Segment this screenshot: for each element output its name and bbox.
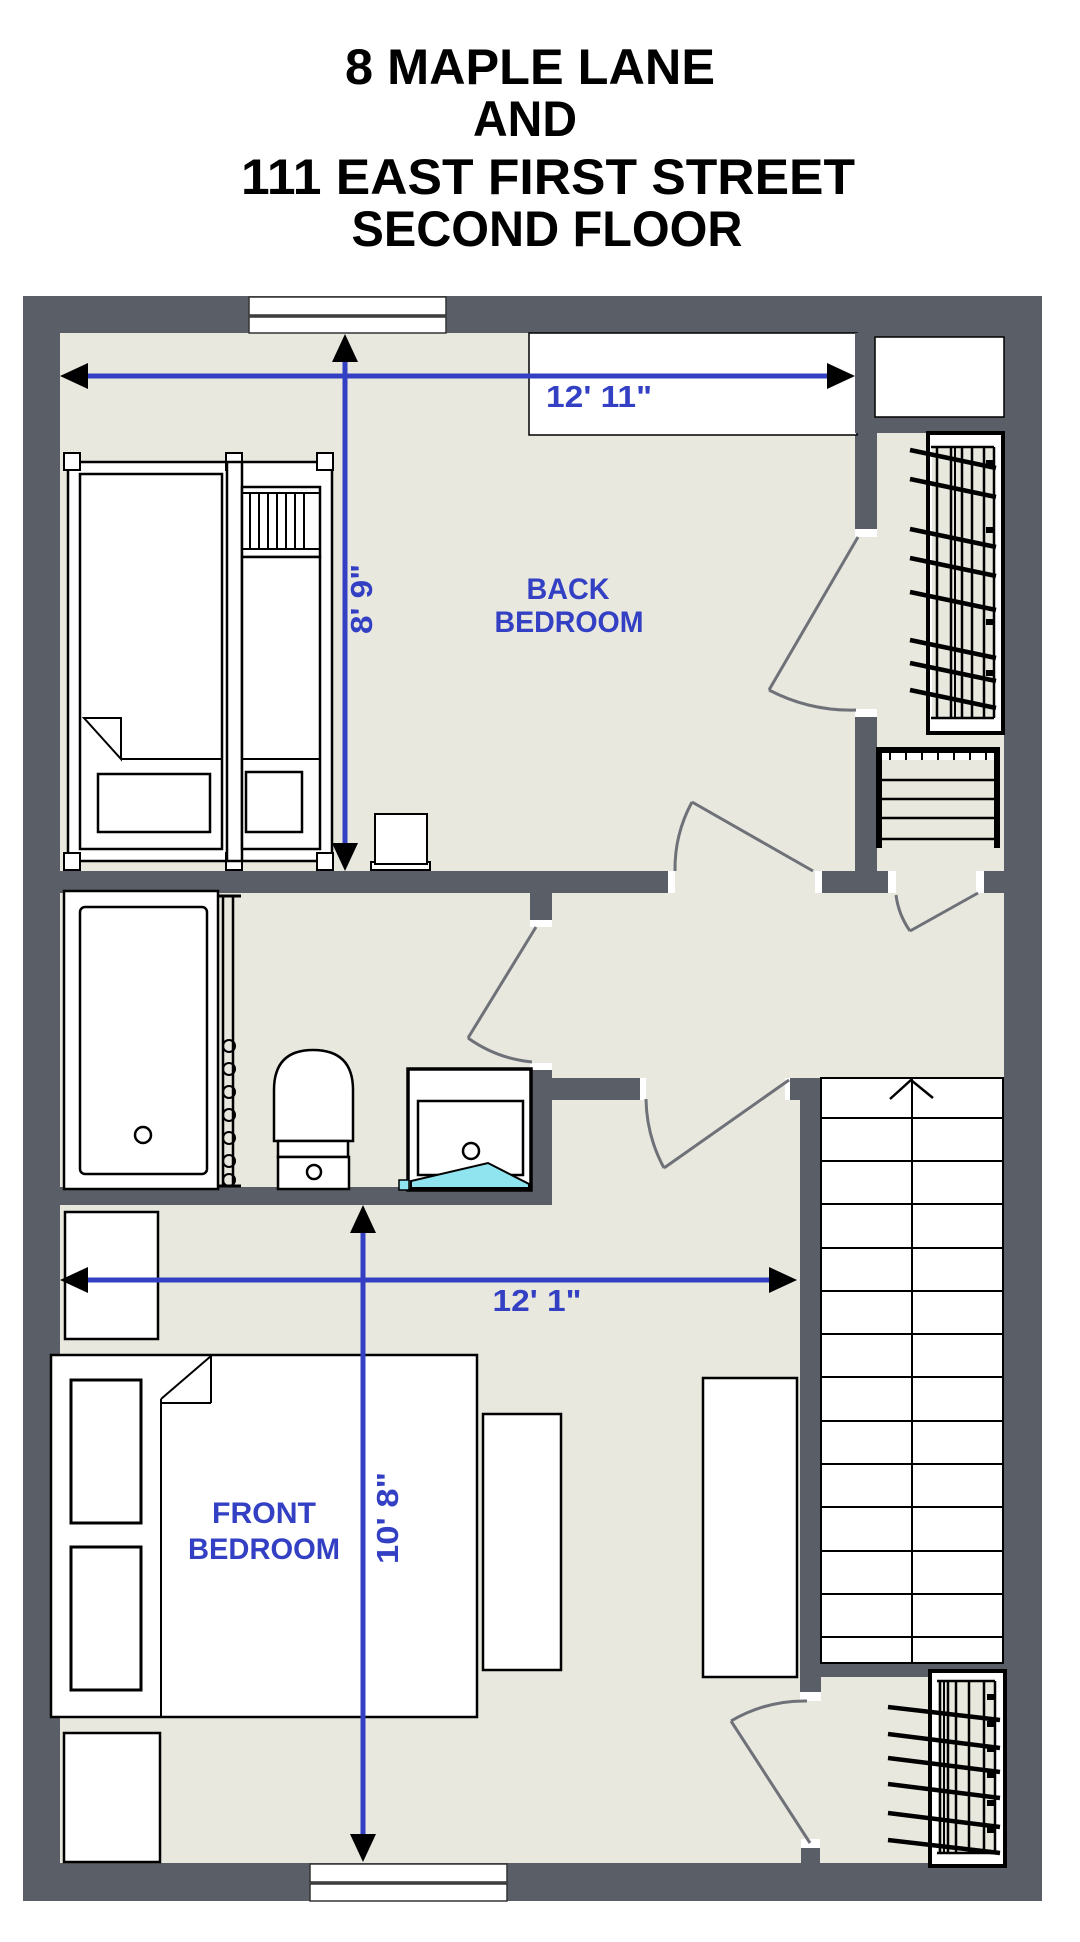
svg-text:BEDROOM: BEDROOM (495, 606, 644, 639)
svg-text:8 MAPLE LANE: 8 MAPLE LANE (345, 39, 715, 95)
svg-text:12' 11": 12' 11" (546, 379, 652, 414)
svg-text:FRONT: FRONT (212, 1497, 316, 1530)
svg-text:BACK: BACK (527, 573, 610, 606)
svg-text:SECOND FLOOR: SECOND FLOOR (352, 201, 743, 257)
svg-text:12' 1": 12' 1" (493, 1283, 582, 1318)
svg-text:10' 8": 10' 8" (370, 1472, 405, 1564)
svg-text:8' 9": 8' 9" (344, 564, 379, 634)
svg-text:111 EAST FIRST STREET: 111 EAST FIRST STREET (241, 149, 855, 205)
svg-text:BEDROOM: BEDROOM (188, 1533, 340, 1566)
svg-text:AND: AND (473, 91, 577, 147)
